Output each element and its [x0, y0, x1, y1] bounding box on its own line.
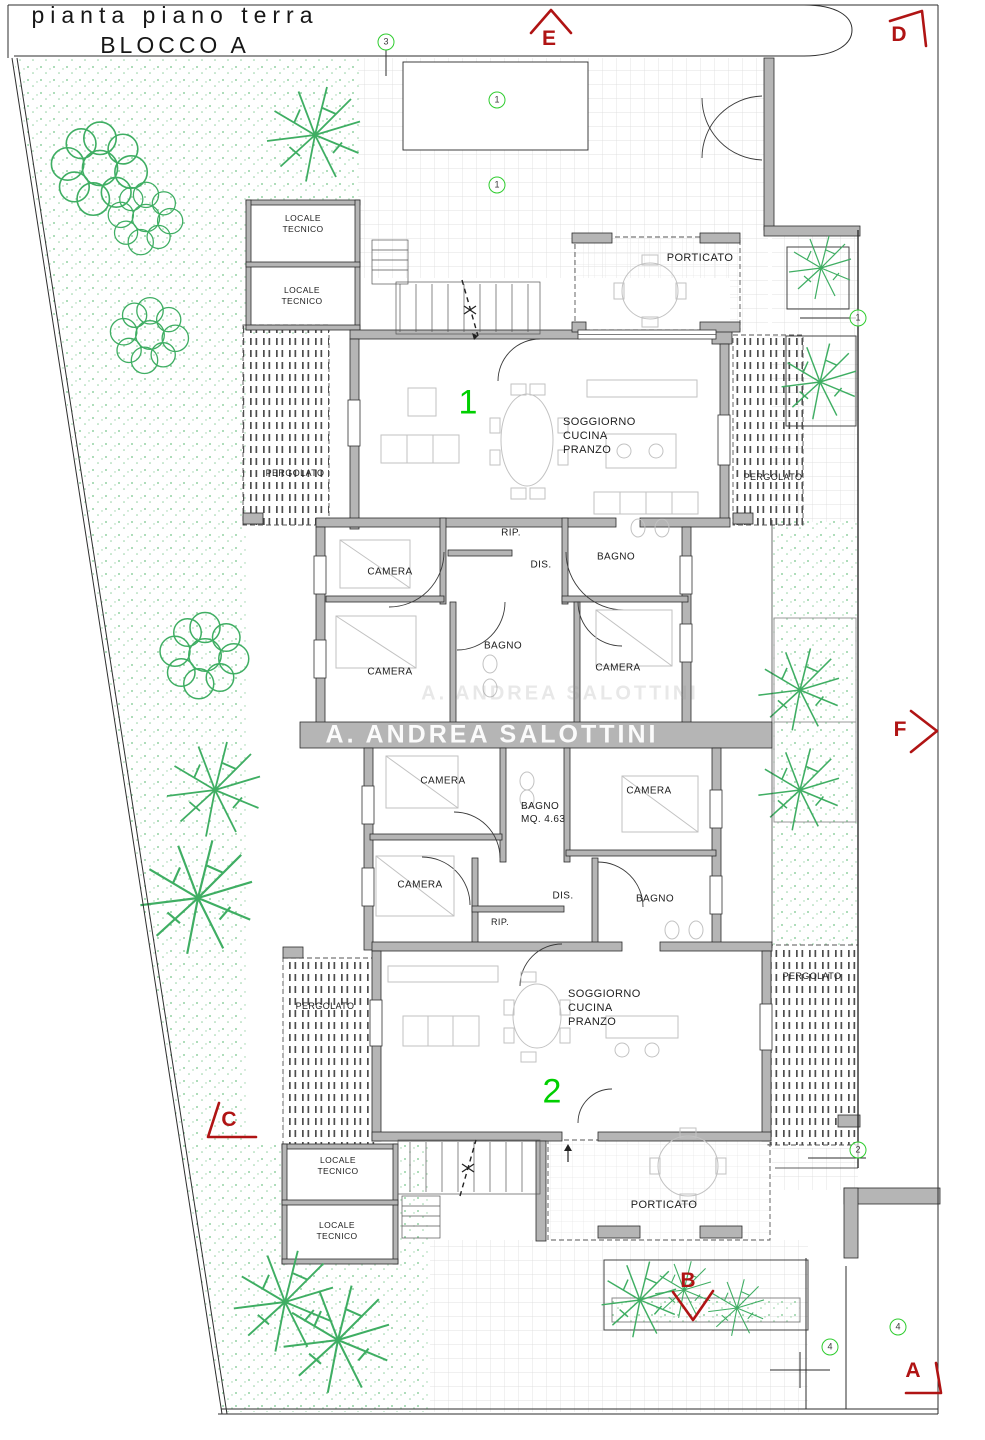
room-label-camera-1b: CAMERA — [367, 667, 412, 680]
room-label-pergolato-1: PERGOLATO — [266, 468, 325, 480]
room-label-rip-2: RIP. — [491, 917, 509, 929]
room-label-locale-tecnico-4: LOCALE TECNICO — [316, 1220, 357, 1242]
section-marker-f: F — [894, 718, 907, 742]
room-label-locale-tecnico-3: LOCALE TECNICO — [317, 1155, 358, 1177]
unit-number-1: 1 — [459, 384, 478, 423]
room-label-camera-1a: CAMERA — [367, 567, 412, 580]
room-label-porticato-bottom: PORTICATO — [631, 1198, 698, 1212]
unit-number-2: 2 — [543, 1073, 562, 1112]
section-marker-b: B — [680, 1269, 695, 1293]
room-label-camera-2a: CAMERA — [420, 776, 465, 789]
room-label-pergolato-4: PERGOLATO — [783, 971, 842, 983]
section-marker-e: E — [542, 27, 556, 51]
floor-plan-page: A. ANDREA SALOTTINI A. ANDREA SALOTTINI … — [0, 0, 985, 1440]
section-marker-d: D — [891, 23, 906, 47]
room-label-bagno-2a: BAGNO MQ. 4.63 — [521, 801, 565, 827]
reference-number-4: 4 — [822, 1339, 839, 1356]
room-label-rip-1: RIP. — [501, 528, 521, 541]
room-label-dis-1: DIS. — [530, 560, 551, 573]
room-label-locale-tecnico-2: LOCALE TECNICO — [281, 285, 322, 307]
reference-number-2: 2 — [850, 1142, 867, 1159]
room-label-locale-tecnico-1: LOCALE TECNICO — [282, 213, 323, 235]
reference-number-1: 1 — [489, 177, 506, 194]
reference-number-1: 1 — [489, 92, 506, 109]
room-label-soggiorno-1: SOGGIORNO CUCINA PRANZO — [563, 415, 636, 457]
reference-number-1: 1 — [850, 310, 867, 327]
room-label-camera-2c: CAMERA — [397, 880, 442, 893]
room-label-camera-2b: CAMERA — [626, 786, 671, 799]
room-label-porticato-top: PORTICATO — [667, 251, 734, 265]
room-label-bagno-1b: BAGNO — [484, 641, 522, 654]
room-label-dis-2: DIS. — [552, 891, 573, 904]
room-label-pergolato-2: PERGOLATO — [744, 472, 803, 484]
reference-number-3: 3 — [378, 34, 395, 51]
label-layer: LOCALE TECNICOLOCALE TECNICOPORTICATOSOG… — [0, 0, 985, 1440]
section-marker-c: C — [221, 1108, 236, 1132]
room-label-bagno-1a: BAGNO — [597, 552, 635, 565]
room-label-bagno-2b: BAGNO — [636, 894, 674, 907]
room-label-pergolato-3: PERGOLATO — [296, 1001, 355, 1013]
section-marker-a: A — [905, 1359, 920, 1383]
reference-number-4: 4 — [890, 1319, 907, 1336]
room-label-soggiorno-2: SOGGIORNO CUCINA PRANZO — [568, 987, 641, 1029]
room-label-camera-1c: CAMERA — [595, 663, 640, 676]
